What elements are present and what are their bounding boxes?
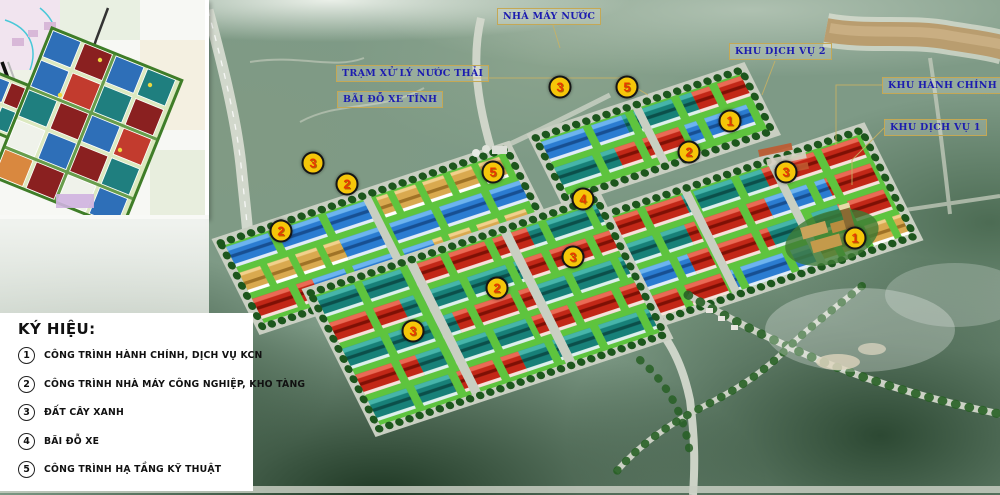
fade-panel [0,215,209,315]
area-label: NHÀ MÁY NƯỚC [497,8,601,25]
legend-item-4: 4BÃI ĐỖ XE [18,433,253,450]
legend-item-1: 1CÔNG TRÌNH HÀNH CHÍNH, DỊCH VỤ KCN [18,347,253,364]
plan-marker-2: 2 [270,220,293,243]
plan-marker-3: 3 [775,161,798,184]
plan-marker-3: 3 [302,152,325,175]
plan-marker-1: 1 [719,110,742,133]
legend-number-badge: 1 [18,347,35,364]
area-label: KHU HÀNH CHÍNH [882,77,1000,94]
legend-item-label: BÃI ĐỖ XE [44,436,99,447]
plan-marker-3: 3 [402,320,425,343]
legend-number-badge: 4 [18,433,35,450]
legend-item-label: CÔNG TRÌNH NHÀ MÁY CÔNG NGHIỆP, KHO TÀNG [44,379,305,390]
plan-marker-3: 3 [562,246,585,269]
plan-marker-1: 1 [844,227,867,250]
legend-item-2: 2CÔNG TRÌNH NHÀ MÁY CÔNG NGHIỆP, KHO TÀN… [18,376,253,393]
plan-marker-4: 4 [572,188,595,211]
legend-item-label: CÔNG TRÌNH HẠ TẦNG KỸ THUẬT [44,464,221,475]
legend-number-badge: 2 [18,376,35,393]
legend-items: 1CÔNG TRÌNH HÀNH CHÍNH, DỊCH VỤ KCN2CÔNG… [18,347,253,478]
area-label: BÃI ĐỖ XE TĨNH [337,91,443,108]
legend-item-5: 5CÔNG TRÌNH HẠ TẦNG KỸ THUẬT [18,461,253,478]
legend-number-badge: 5 [18,461,35,478]
legend-title: KÝ HIỆU: [18,320,253,338]
river [826,28,1000,48]
plan-marker-3: 3 [549,76,572,99]
inset-2d-plan [0,0,209,219]
plan-marker-2: 2 [486,277,509,300]
legend-number-badge: 3 [18,404,35,421]
legend-item-3: 3ĐẤT CÂY XANH [18,404,253,421]
legend-panel: KÝ HIỆU: 1CÔNG TRÌNH HÀNH CHÍNH, DỊCH VỤ… [0,313,253,491]
plan-marker-5: 5 [616,76,639,99]
area-label: TRẠM XỬ LÝ NƯỚC THẢI [336,65,489,82]
plan-marker-5: 5 [482,161,505,184]
legend-item-label: ĐẤT CÂY XANH [44,407,124,418]
master-plan-image: KÝ HIỆU: 1CÔNG TRÌNH HÀNH CHÍNH, DỊCH VỤ… [0,0,1000,495]
area-label: KHU DỊCH VỤ 1 [884,119,987,136]
area-label: KHU DỊCH VỤ 2 [729,43,832,60]
legend-item-label: CÔNG TRÌNH HÀNH CHÍNH, DỊCH VỤ KCN [44,350,263,361]
plan-marker-2: 2 [678,141,701,164]
plan-marker-2: 2 [336,173,359,196]
